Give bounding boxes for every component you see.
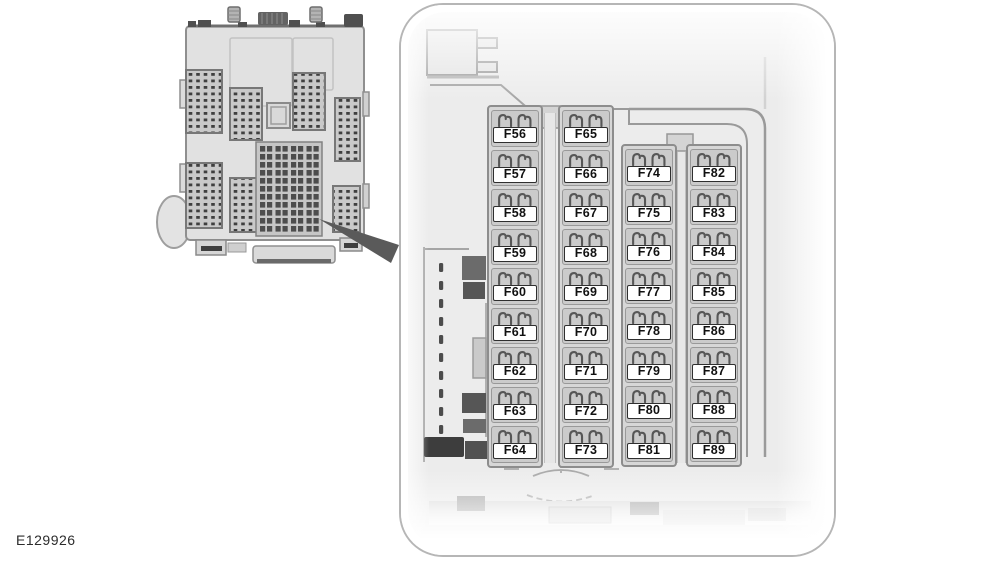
fuse-prongs-icon <box>564 231 608 246</box>
fuse-label: F78 <box>627 324 671 340</box>
fuse-cell-f88: F88 <box>690 386 738 423</box>
fuse-label: F67 <box>564 206 608 222</box>
fuse-prongs-icon <box>564 191 608 206</box>
mounting-stud-right <box>310 7 322 22</box>
fuse-prongs-icon <box>493 191 537 206</box>
fuse-cell-f58: F58 <box>491 189 539 226</box>
fuse-prongs-icon <box>493 349 537 364</box>
fuse-label: F74 <box>627 166 671 182</box>
fuse-prongs-icon <box>564 349 608 364</box>
fuse-prongs-icon <box>493 152 537 167</box>
fuse-prongs-icon <box>692 230 736 245</box>
fuse-prongs-icon <box>627 191 671 206</box>
fuse-label: F85 <box>692 285 736 301</box>
fuse-prongs-icon <box>564 310 608 325</box>
fuse-label: F62 <box>493 364 537 380</box>
fuse-cell-f72: F72 <box>562 387 610 424</box>
fuse-cell-f84: F84 <box>690 228 738 265</box>
fuse-prongs-icon <box>692 151 736 166</box>
fuse-label: F86 <box>692 324 736 340</box>
figure-code-label: E129926 <box>16 532 76 548</box>
fuse-label: F87 <box>692 364 736 380</box>
fuse-cell-f67: F67 <box>562 189 610 226</box>
fuse-prongs-icon <box>627 309 671 324</box>
fuse-prongs-icon <box>493 231 537 246</box>
fuse-prongs-icon <box>493 389 537 404</box>
fuse-cell-f74: F74 <box>625 149 673 186</box>
fuse-prongs-icon <box>493 270 537 285</box>
fuse-prongs-icon <box>493 428 537 443</box>
fuse-label: F60 <box>493 285 537 301</box>
fuse-cell-f78: F78 <box>625 307 673 344</box>
fuse-cell-f85: F85 <box>690 268 738 305</box>
fuse-label: F61 <box>493 325 537 341</box>
fuse-label: F64 <box>493 443 537 459</box>
fuse-prongs-icon <box>627 151 671 166</box>
fuse-cell-f57: F57 <box>491 150 539 187</box>
fuse-label: F56 <box>493 127 537 143</box>
fuse-cell-f56: F56 <box>491 110 539 147</box>
fuse-cell-f66: F66 <box>562 150 610 187</box>
fuse-prongs-icon <box>564 112 608 127</box>
fuse-cell-f64: F64 <box>491 426 539 463</box>
fuse-prongs-icon <box>692 270 736 285</box>
fuse-cell-f65: F65 <box>562 110 610 147</box>
fuse-prongs-icon <box>692 388 736 403</box>
fuse-cell-f63: F63 <box>491 387 539 424</box>
fuse-cell-f60: F60 <box>491 268 539 305</box>
fuse-column-3: F74F75F76F77F78F79F80F81 <box>621 144 677 467</box>
fuse-cell-f75: F75 <box>625 189 673 226</box>
fuse-prongs-icon <box>564 152 608 167</box>
fuse-cell-f77: F77 <box>625 268 673 305</box>
fuse-prongs-icon <box>627 428 671 443</box>
fuse-label: F81 <box>627 443 671 459</box>
fuse-label: F89 <box>692 443 736 459</box>
fuse-cell-f68: F68 <box>562 229 610 266</box>
fuse-prongs-icon <box>493 310 537 325</box>
fuse-cell-f82: F82 <box>690 149 738 186</box>
fuse-label: F68 <box>564 246 608 262</box>
top-center-connector <box>258 12 288 25</box>
fuse-cell-f73: F73 <box>562 426 610 463</box>
fuse-label: F73 <box>564 443 608 459</box>
fuse-prongs-icon <box>564 428 608 443</box>
fuse-prongs-icon <box>564 270 608 285</box>
fuse-cell-f81: F81 <box>625 426 673 463</box>
fuse-prongs-icon <box>564 389 608 404</box>
fuse-label: F77 <box>627 285 671 301</box>
fuse-label: F75 <box>627 206 671 222</box>
fuse-label: F71 <box>564 364 608 380</box>
fuse-label: F83 <box>692 206 736 222</box>
fuse-cell-f71: F71 <box>562 347 610 384</box>
callout-pointer-icon <box>312 210 407 270</box>
fuse-cell-f62: F62 <box>491 347 539 384</box>
fuse-column-2: F65F66F67F68F69F70F71F72F73 <box>558 105 614 468</box>
fuse-panel-detail-view: F56F57F58F59F60F61F62F63F64F65F66F67F68F… <box>399 3 836 557</box>
fuse-cell-f61: F61 <box>491 308 539 345</box>
fuse-column-4: F82F83F84F85F86F87F88F89 <box>686 144 742 467</box>
fuse-cell-f83: F83 <box>690 189 738 226</box>
fuse-cell-f80: F80 <box>625 386 673 423</box>
fuse-cell-f70: F70 <box>562 308 610 345</box>
fuse-cell-f76: F76 <box>625 228 673 265</box>
fuse-prongs-icon <box>692 309 736 324</box>
fuse-label: F57 <box>493 167 537 183</box>
mounting-stud-left <box>228 7 240 22</box>
fuse-cell-f79: F79 <box>625 347 673 384</box>
fuse-cell-f87: F87 <box>690 347 738 384</box>
fuse-label: F66 <box>564 167 608 183</box>
fuse-prongs-icon <box>627 270 671 285</box>
fuse-cell-f89: F89 <box>690 426 738 463</box>
fuse-cell-f69: F69 <box>562 268 610 305</box>
fuse-label: F84 <box>692 245 736 261</box>
fuse-label: F79 <box>627 364 671 380</box>
fuse-label: F80 <box>627 403 671 419</box>
fuse-label: F59 <box>493 246 537 262</box>
fuse-label: F58 <box>493 206 537 222</box>
fuse-cell-f86: F86 <box>690 307 738 344</box>
fuse-label: F88 <box>692 403 736 419</box>
fuse-label: F63 <box>493 404 537 420</box>
fuse-label: F69 <box>564 285 608 301</box>
fuse-prongs-icon <box>493 112 537 127</box>
fuse-prongs-icon <box>627 230 671 245</box>
fuse-prongs-icon <box>627 349 671 364</box>
fuse-label: F72 <box>564 404 608 420</box>
fuse-cell-f59: F59 <box>491 229 539 266</box>
fuse-prongs-icon <box>692 191 736 206</box>
figure-canvas: F56F57F58F59F60F61F62F63F64F65F66F67F68F… <box>0 0 1000 562</box>
fuse-label: F65 <box>564 127 608 143</box>
fuse-grid: F56F57F58F59F60F61F62F63F64F65F66F67F68F… <box>401 5 834 555</box>
fuse-column-1: F56F57F58F59F60F61F62F63F64 <box>487 105 543 468</box>
fuse-label: F82 <box>692 166 736 182</box>
fuse-prongs-icon <box>627 388 671 403</box>
fuse-label: F70 <box>564 325 608 341</box>
fuse-label: F76 <box>627 245 671 261</box>
fuse-prongs-icon <box>692 349 736 364</box>
fuse-prongs-icon <box>692 428 736 443</box>
